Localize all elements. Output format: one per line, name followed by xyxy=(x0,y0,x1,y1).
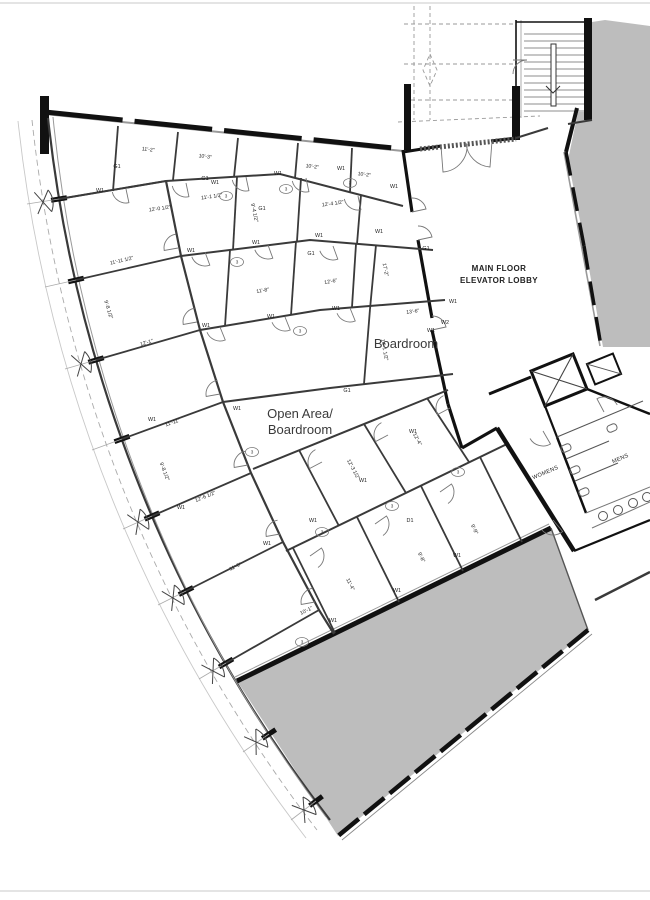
wall-tag: W1 xyxy=(187,248,195,254)
band7-wall xyxy=(286,443,509,551)
northwest-corner-column xyxy=(40,96,49,154)
mens-label: MENS xyxy=(611,453,629,465)
dim-label: 13'-6" xyxy=(406,308,420,316)
roof-wedge-shade xyxy=(237,528,588,836)
lobby-door-swing-1 xyxy=(412,198,426,212)
dim-label: 11'-4" xyxy=(344,577,355,591)
dim-label: 12'-6" xyxy=(324,278,338,286)
vestibule-wall xyxy=(404,84,411,150)
dim-label: 9'-8 1/2" xyxy=(102,300,113,320)
lobby-label-line1: MAIN FLOOR xyxy=(472,264,527,273)
dim-label: 11'-8" xyxy=(256,287,270,295)
wall-tag: W1 xyxy=(359,478,367,484)
dim-label: 9'-8 1/2" xyxy=(158,462,170,482)
dim-label: 12'-0 1/2" xyxy=(149,204,172,213)
wall-tag: G1 xyxy=(258,206,265,212)
wall-tag: G1 xyxy=(201,176,208,182)
door-tag: 3 xyxy=(236,260,239,265)
wall-tag: W1 xyxy=(267,314,275,320)
stair-center-rail xyxy=(551,44,556,106)
door-tag: 3 xyxy=(349,181,352,186)
womens-label: WOMENS xyxy=(532,465,560,481)
dim-label: 10'-2" xyxy=(305,163,319,171)
wall-tag: W1 xyxy=(449,299,457,305)
wall-tag: W2 xyxy=(441,320,449,326)
wall-tag: W1 xyxy=(263,541,271,547)
facade-offset-line xyxy=(18,121,306,838)
north-wall xyxy=(45,112,403,149)
elevator xyxy=(531,354,587,406)
wall-tag: W1 xyxy=(315,233,323,239)
wall-tag: W1 xyxy=(329,618,337,624)
wall-tag: W1 xyxy=(274,171,282,177)
wall-tag: W1 xyxy=(233,406,241,412)
mid-band-dividers xyxy=(225,177,376,384)
door-tag: 3 xyxy=(299,329,302,334)
stair-right-wall xyxy=(584,18,592,120)
wall-tag: W1 xyxy=(252,240,260,246)
dim-label: 9'-9" xyxy=(469,524,479,536)
wall-tag: W1 xyxy=(309,518,317,524)
dim-label: 10'-2" xyxy=(357,171,371,179)
wall-tag: W1 xyxy=(375,229,383,235)
open-area-label-line1: Open Area/ xyxy=(267,406,333,421)
dim-label: 17'-2" xyxy=(381,263,390,277)
door-tag: 3 xyxy=(285,187,288,192)
floor-plan-page: MAIN FLOOR ELEVATOR LOBBY Boardroom Open… xyxy=(0,0,650,900)
dim-label: 11'-11 1/2" xyxy=(109,255,134,266)
dim-label: 11'-11" xyxy=(164,418,181,429)
wall-tag: W1 xyxy=(148,417,156,423)
wall-tag: W1 xyxy=(202,323,210,329)
dim-label: 11'-2" xyxy=(141,146,155,154)
dim-label: 12'-1" xyxy=(140,338,155,347)
wall-tag: W1 xyxy=(96,188,104,194)
band4-wall xyxy=(223,374,453,402)
wall-tag: W1 xyxy=(332,306,340,312)
wall-tag: W1 xyxy=(390,184,398,190)
womens-door-swing xyxy=(530,431,550,451)
wall-tag: W1 xyxy=(337,166,345,172)
wall-tag: W1 xyxy=(393,588,401,594)
lobby-entry-door-right xyxy=(466,141,492,167)
door-swings xyxy=(112,177,459,604)
lobby-door-swing-2 xyxy=(418,226,432,240)
dimension-labels: 11'-2" 10'-2" 10'-2" 10'-3" 12'-0 1/2" 1… xyxy=(102,146,479,616)
corridor-west-wall xyxy=(497,428,574,551)
wall-tag: W1 xyxy=(427,328,435,334)
wall-tag: G1 xyxy=(422,246,429,252)
elevator-2 xyxy=(587,354,621,385)
door-tag: 3 xyxy=(391,504,394,509)
wc-toilets xyxy=(560,423,618,497)
open-area-label-line2: Boardroom xyxy=(268,422,332,437)
wall-tag: W1 xyxy=(177,505,185,511)
wall-tag: G1 xyxy=(113,164,120,170)
lobby-label-line2: ELEVATOR LOBBY xyxy=(460,276,538,285)
wc-vanity xyxy=(586,487,650,528)
wall-tag: W1 xyxy=(409,429,417,435)
wall-tag: G1 xyxy=(307,251,314,257)
dim-label: 9'-8" xyxy=(416,552,426,564)
dim-label: 11'-9" xyxy=(228,562,242,573)
wall-tag: W1 xyxy=(453,553,461,559)
door-tag: 3 xyxy=(321,530,324,535)
dim-label: 10'-3" xyxy=(198,153,212,161)
floor-plan-svg: MAIN FLOOR ELEVATOR LOBBY Boardroom Open… xyxy=(0,0,650,900)
stair-left-wall-stub xyxy=(512,86,520,140)
door-tag: 3 xyxy=(251,450,254,455)
door-tag: 3 xyxy=(457,470,460,475)
dim-label: 12'-4 1/2" xyxy=(322,199,345,208)
door-tag: 3 xyxy=(225,194,228,199)
wall-tag: G1 xyxy=(343,388,350,394)
door-tag: 3 xyxy=(301,640,304,645)
wall-tag: W1 xyxy=(211,180,219,186)
wall-tag: D1 xyxy=(407,518,414,524)
